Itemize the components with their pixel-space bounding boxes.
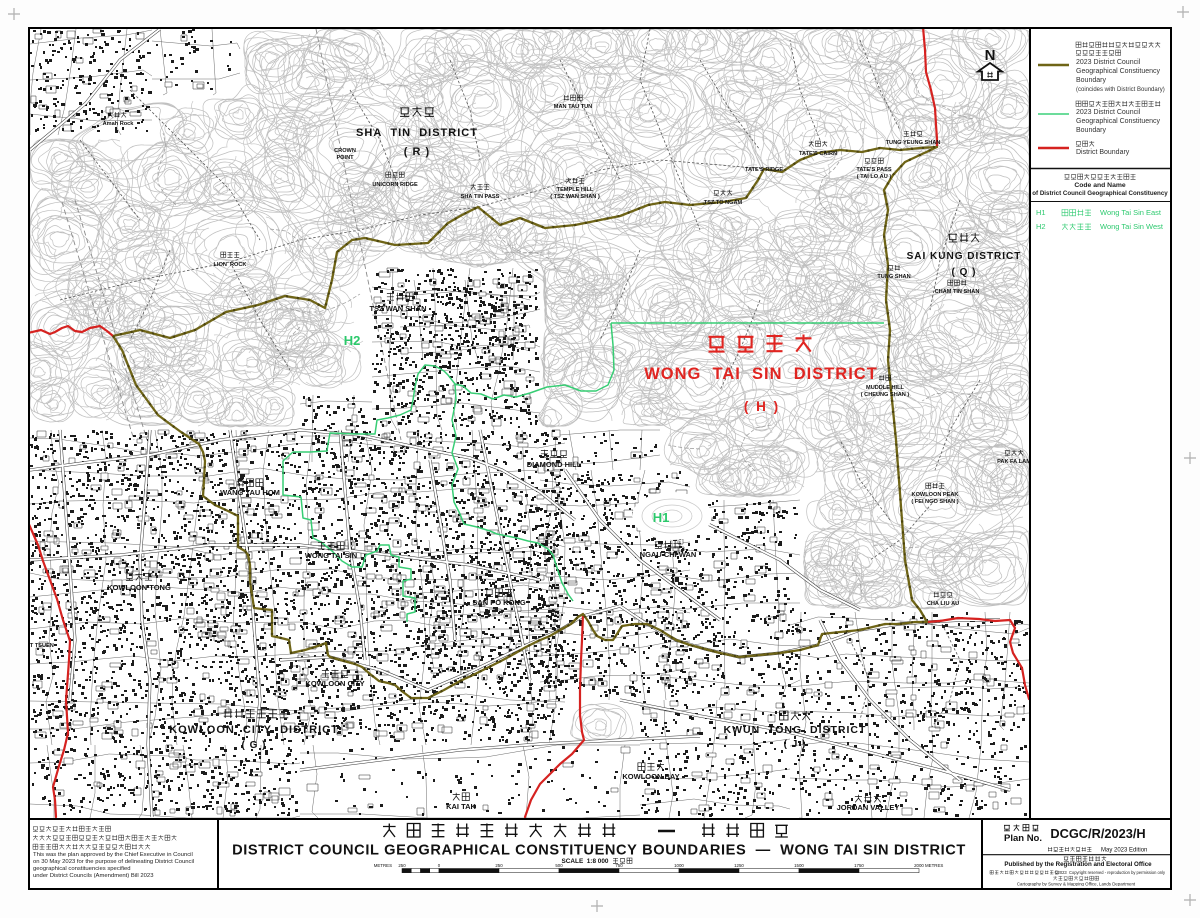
svg-text:1750: 1750: [854, 863, 864, 868]
svg-text:May 2023 Edition: May 2023 Edition: [1101, 848, 1147, 854]
svg-text:N: N: [985, 47, 996, 64]
svg-text:©2023 Copyright reserved - re: ©2023 Copyright reserved - reproduction …: [1055, 870, 1166, 875]
svg-text:This was the plan approved by: This was the plan approved by the Chief …: [33, 852, 193, 858]
svg-text:SAI KUNG DISTRICT: SAI KUNG DISTRICT: [907, 251, 1022, 262]
svg-text:WANG TAU HOM: WANG TAU HOM: [220, 488, 280, 497]
svg-text:on 30 May 2023 for the purpose: on 30 May 2023 for the purpose of deline…: [33, 859, 194, 865]
svg-text:CHA LIU AU: CHA LIU AU: [927, 601, 959, 607]
svg-text:1250: 1250: [734, 863, 744, 868]
svg-text:250: 250: [398, 863, 406, 868]
svg-text:KOWLOON CITY DISTRICT: KOWLOON CITY DISTRICT: [169, 724, 339, 736]
svg-text:Boundary: Boundary: [1076, 77, 1106, 84]
svg-text:2023 District Council: 2023 District Council: [1076, 109, 1141, 116]
svg-text:KOWLOON TONG: KOWLOON TONG: [107, 583, 171, 592]
svg-text:under District Councils (Amend: under District Councils (Amendment) Bill…: [33, 873, 154, 879]
svg-text:2000: 2000: [914, 863, 924, 868]
svg-text:KOWLOON PEAK: KOWLOON PEAK: [912, 492, 959, 498]
svg-text:Wong Tai Sin West: Wong Tai Sin West: [1100, 222, 1164, 231]
svg-text:SAN PO KONG: SAN PO KONG: [472, 598, 526, 607]
svg-text:( TAI LO AU ): ( TAI LO AU ): [857, 174, 892, 180]
svg-text:( FEI NGO SHAN ): ( FEI NGO SHAN ): [911, 499, 958, 505]
svg-text:geographical constituencies sp: geographical constituencies specified: [33, 866, 131, 872]
svg-text:TATE'S CAIRN: TATE'S CAIRN: [799, 151, 837, 157]
svg-text:WONG TAI SIN DISTRICT: WONG TAI SIN DISTRICT: [644, 365, 878, 383]
svg-text:( TSZ WAN SHAN ): ( TSZ WAN SHAN ): [550, 194, 600, 200]
svg-text:1500: 1500: [794, 863, 804, 868]
svg-text:Published by the Registration: Published by the Registration and Electo…: [1004, 861, 1152, 868]
svg-text:District Boundary: District Boundary: [1076, 149, 1130, 156]
svg-text:H1: H1: [1036, 208, 1046, 217]
svg-text:JORDAN VALLEY: JORDAN VALLEY: [837, 803, 900, 812]
svg-text:Geographical Constituency: Geographical Constituency: [1076, 68, 1161, 75]
svg-text:UNICORN RIDGE: UNICORN RIDGE: [372, 182, 418, 188]
svg-text:SHA TIN DISTRICT: SHA TIN DISTRICT: [356, 127, 478, 139]
svg-text:KAI TAK: KAI TAK: [446, 802, 476, 811]
svg-text:750: 750: [615, 863, 623, 868]
svg-text:SHA TIN PASS: SHA TIN PASS: [461, 194, 500, 200]
svg-text:DISTRICT COUNCIL GEOGRAPHICAL: DISTRICT COUNCIL GEOGRAPHICAL CONSTITUEN…: [232, 843, 966, 859]
svg-text:KOWLOON CITY: KOWLOON CITY: [305, 679, 364, 688]
svg-text:TUNG SHAN: TUNG SHAN: [877, 274, 910, 280]
svg-text:TUNG YEUNG SHAN: TUNG YEUNG SHAN: [886, 140, 941, 146]
svg-text:Boundary: Boundary: [1076, 127, 1106, 134]
svg-text:KWUN TONG DISTRICT: KWUN TONG DISTRICT: [724, 724, 867, 736]
svg-text:TATE'S PASS: TATE'S PASS: [856, 167, 891, 173]
svg-text:Geographical Constituency: Geographical Constituency: [1076, 118, 1161, 125]
svg-text:of District Council Geographic: of District Council Geographical Constit…: [1032, 190, 1168, 197]
svg-text:Code and Name: Code and Name: [1074, 182, 1126, 189]
svg-text:POINT: POINT: [336, 155, 354, 161]
svg-text:PAK FA LAM: PAK FA LAM: [997, 459, 1029, 465]
svg-text:Amah Rock: Amah Rock: [103, 121, 135, 127]
svg-text:CHAM TIN SHAN: CHAM TIN SHAN: [935, 289, 980, 295]
svg-text:Plan No.: Plan No.: [1004, 833, 1042, 844]
svg-text:( H ): ( H ): [744, 399, 780, 414]
svg-text:AT TSUEN: AT TSUEN: [30, 643, 54, 649]
svg-text:(coincides with District Bound: (coincides with District Boundary): [1076, 87, 1165, 93]
svg-text:( G ): ( G ): [242, 740, 267, 751]
svg-text:CROWN: CROWN: [334, 148, 356, 154]
svg-text:DCGC/R/2023/H: DCGC/R/2023/H: [1050, 826, 1145, 841]
svg-text:SCALE 1:8 000: SCALE 1:8 000: [562, 858, 609, 865]
svg-text:TATE'S RIDGE: TATE'S RIDGE: [745, 167, 783, 173]
svg-text:WONG TAI SIN: WONG TAI SIN: [305, 551, 357, 560]
svg-text:( J ): ( J ): [784, 739, 807, 750]
svg-text:TEMPLE HILL: TEMPLE HILL: [557, 187, 594, 193]
svg-text:KOWLOON BAY: KOWLOON BAY: [622, 772, 679, 781]
svg-text:0: 0: [438, 863, 441, 868]
svg-text:Cartography by Survey & Mappin: Cartography by Survey & Mapping Office, …: [1017, 882, 1136, 887]
svg-text:MUDDLE HILL: MUDDLE HILL: [866, 385, 904, 391]
svg-text:2023 District Council: 2023 District Council: [1076, 59, 1141, 66]
svg-text:500: 500: [555, 863, 563, 868]
svg-text:DIAMOND HILL: DIAMOND HILL: [527, 460, 582, 469]
svg-text:Wong Tai Sin East: Wong Tai Sin East: [1100, 208, 1162, 217]
svg-text:TSZ TO NGAM: TSZ TO NGAM: [704, 200, 743, 206]
svg-text:1000: 1000: [674, 863, 684, 868]
svg-text:( Q ): ( Q ): [952, 267, 977, 278]
svg-text:H1: H1: [653, 510, 670, 525]
svg-text:NGAU CHI WAN: NGAU CHI WAN: [640, 550, 697, 559]
svg-text:METRES: METRES: [374, 863, 392, 868]
svg-text:( CHEUNG SHAN ): ( CHEUNG SHAN ): [861, 392, 910, 398]
svg-text:MAN TAU TUN: MAN TAU TUN: [554, 104, 592, 110]
svg-text:( R ): ( R ): [404, 146, 430, 158]
svg-text:250: 250: [495, 863, 503, 868]
svg-text:H2: H2: [344, 333, 361, 348]
svg-text:LION ROCK: LION ROCK: [214, 262, 247, 268]
svg-text:TSZ WAN SHAN: TSZ WAN SHAN: [369, 304, 426, 313]
svg-text:H2: H2: [1036, 222, 1046, 231]
svg-text:METRES: METRES: [925, 863, 943, 868]
